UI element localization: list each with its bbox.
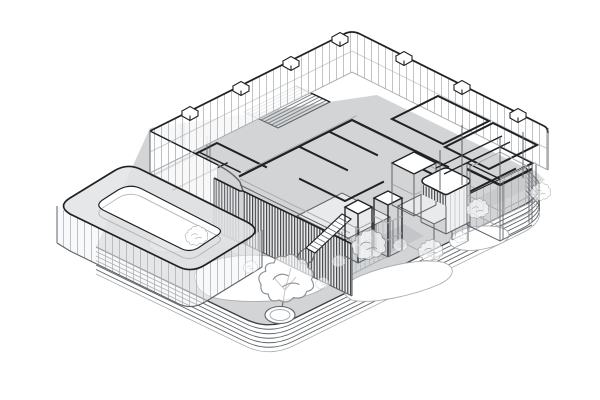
pond — [265, 307, 295, 324]
axonometric-drawing-canvas — [0, 0, 600, 400]
axonometric-drawing — [0, 0, 600, 400]
